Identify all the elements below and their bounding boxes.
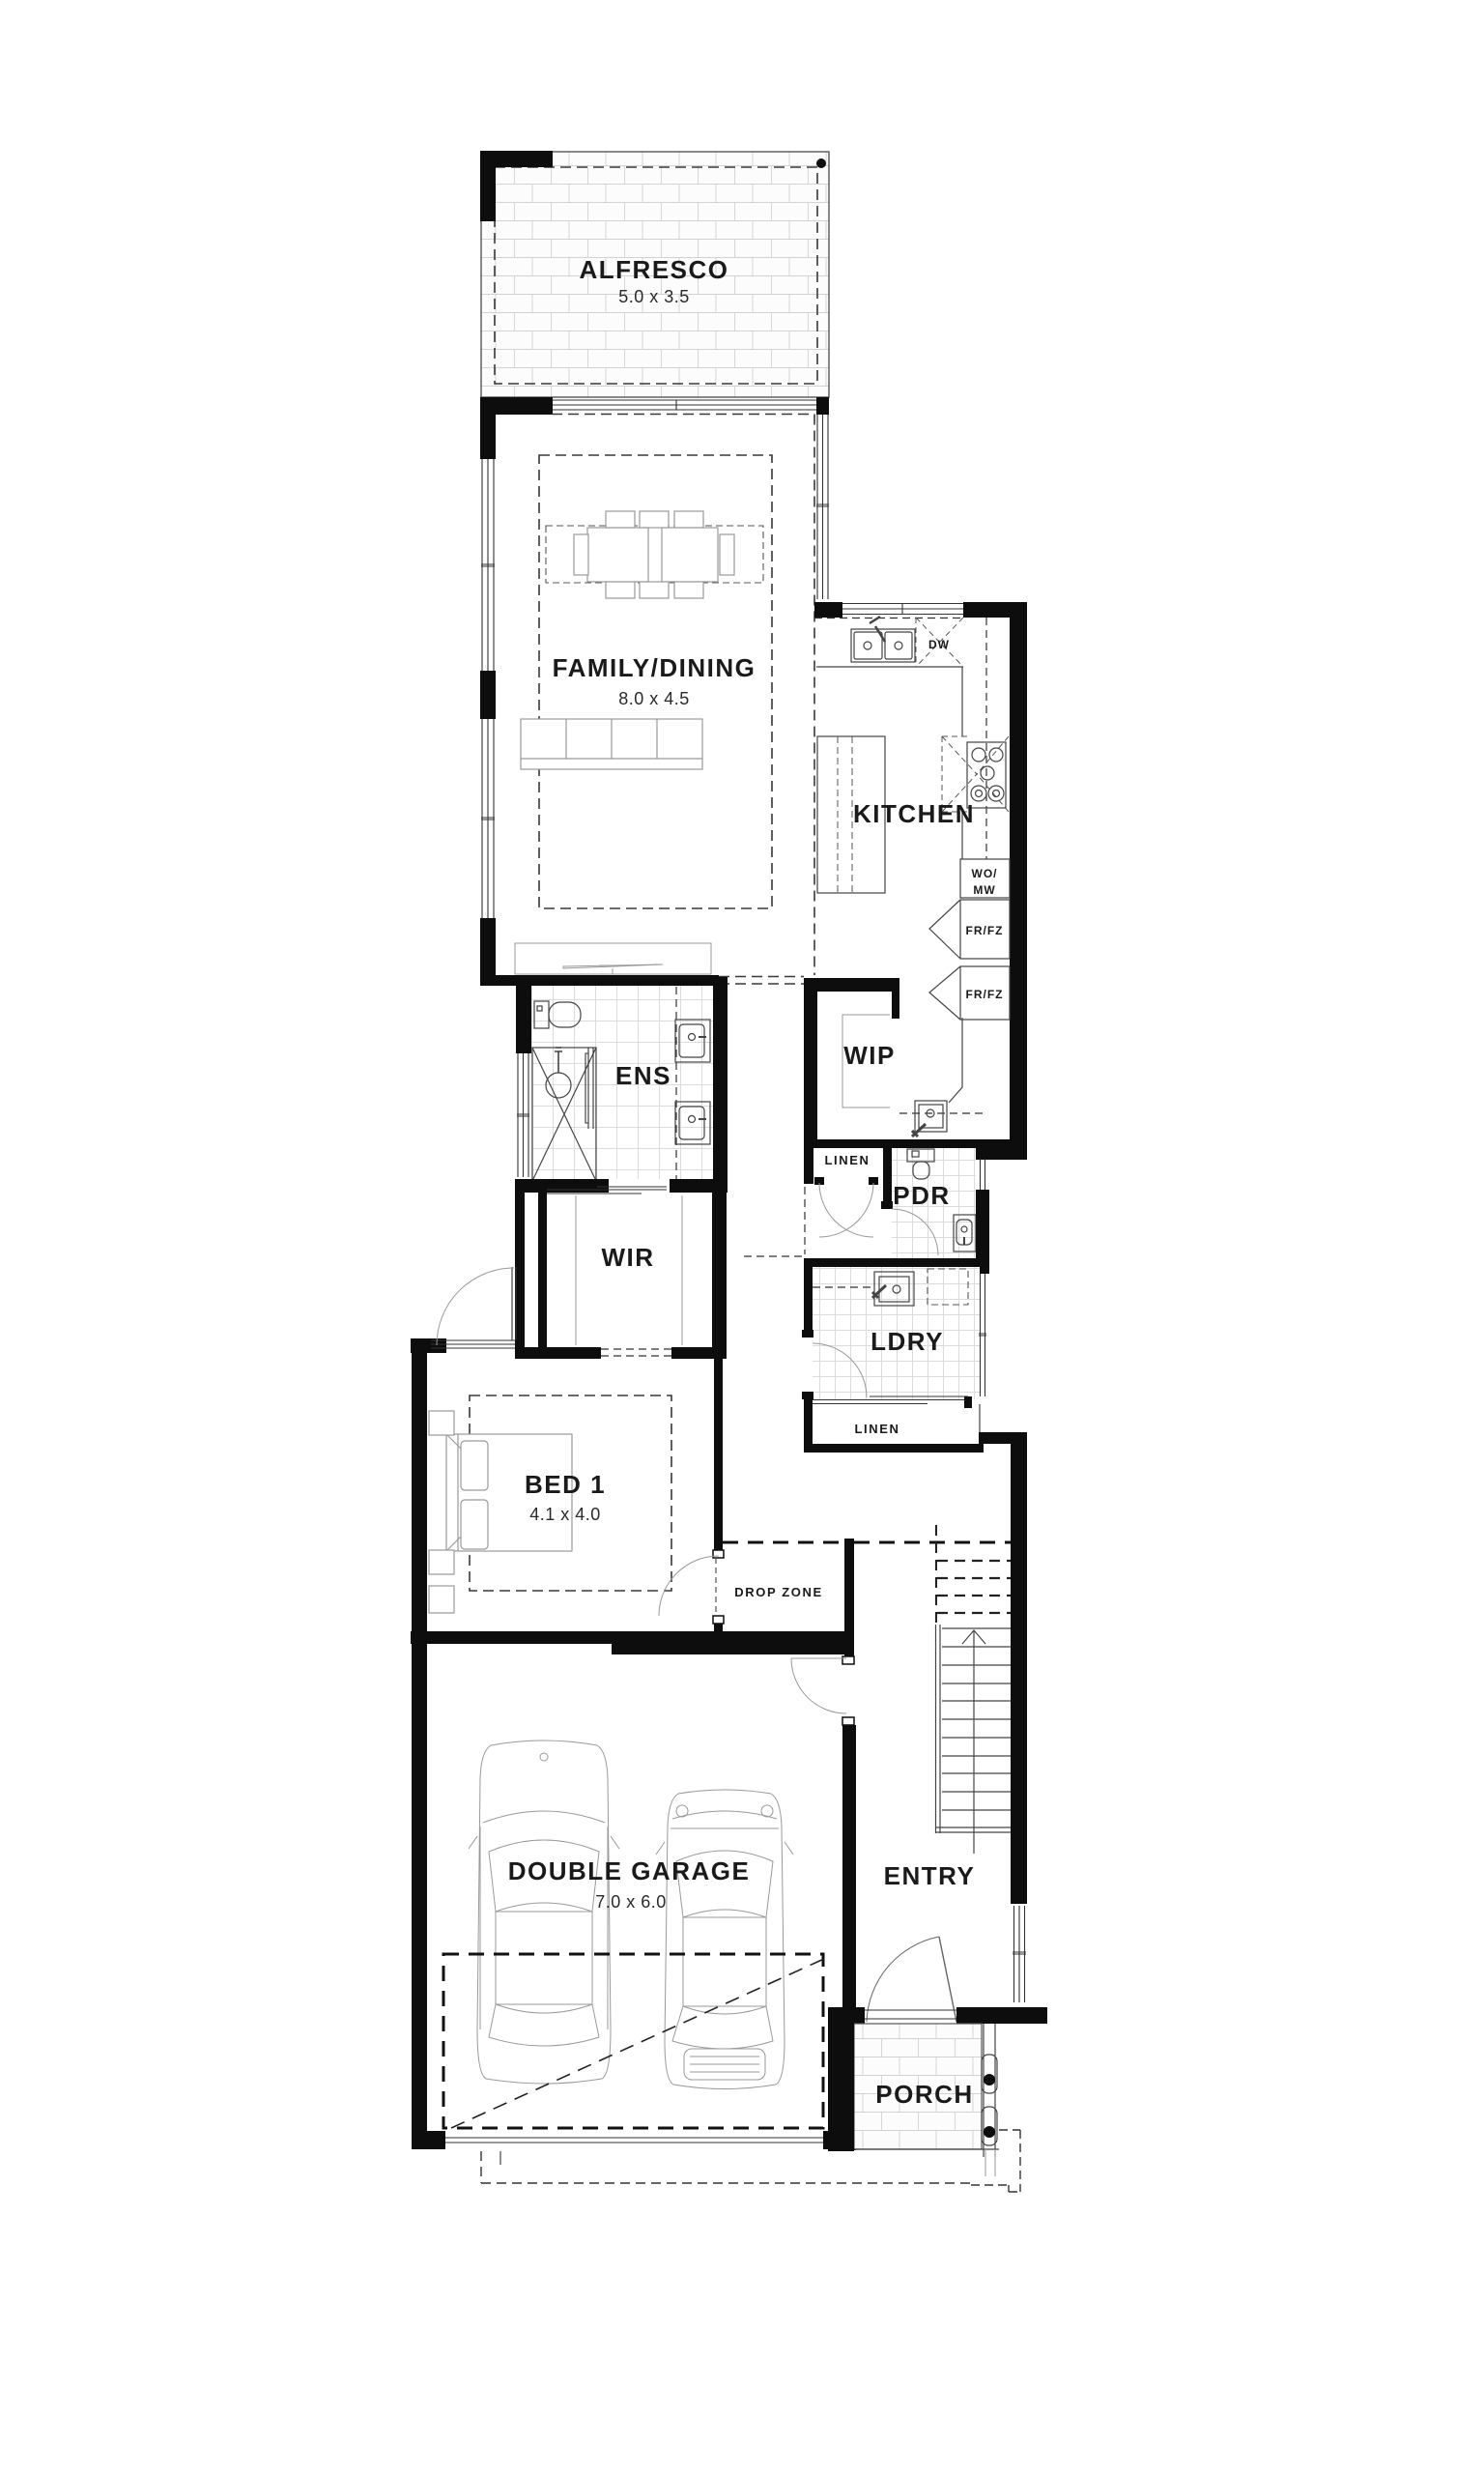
svg-text:BED 1: BED 1 (525, 1470, 606, 1499)
svg-text:LINEN: LINEN (825, 1153, 870, 1167)
svg-text:MW: MW (973, 883, 995, 897)
svg-text:PORCH: PORCH (875, 2080, 973, 2109)
svg-text:ENTRY: ENTRY (884, 1861, 976, 1890)
svg-text:PDR: PDR (893, 1181, 950, 1210)
svg-text:ALFRESCO: ALFRESCO (580, 255, 729, 284)
svg-text:WIP: WIP (843, 1041, 896, 1070)
svg-text:8.0 x 4.5: 8.0 x 4.5 (618, 689, 690, 708)
svg-text:FR/FZ: FR/FZ (966, 924, 1004, 937)
svg-text:KITCHEN: KITCHEN (853, 799, 975, 828)
svg-text:5.0 x 3.5: 5.0 x 3.5 (618, 287, 690, 306)
svg-text:DOUBLE GARAGE: DOUBLE GARAGE (508, 1856, 751, 1885)
svg-text:WO/: WO/ (972, 867, 998, 880)
svg-text:WIR: WIR (601, 1243, 654, 1272)
svg-text:DROP ZONE: DROP ZONE (734, 1585, 822, 1599)
svg-text:DW: DW (928, 638, 950, 651)
svg-text:FAMILY/DINING: FAMILY/DINING (553, 653, 756, 682)
svg-text:ENS: ENS (615, 1061, 671, 1090)
svg-text:7.0 x 6.0: 7.0 x 6.0 (595, 1892, 667, 1912)
svg-text:4.1 x 4.0: 4.1 x 4.0 (529, 1505, 601, 1524)
svg-text:LDRY: LDRY (870, 1327, 944, 1356)
svg-text:FR/FZ: FR/FZ (966, 988, 1004, 1001)
svg-text:LINEN: LINEN (855, 1422, 900, 1436)
